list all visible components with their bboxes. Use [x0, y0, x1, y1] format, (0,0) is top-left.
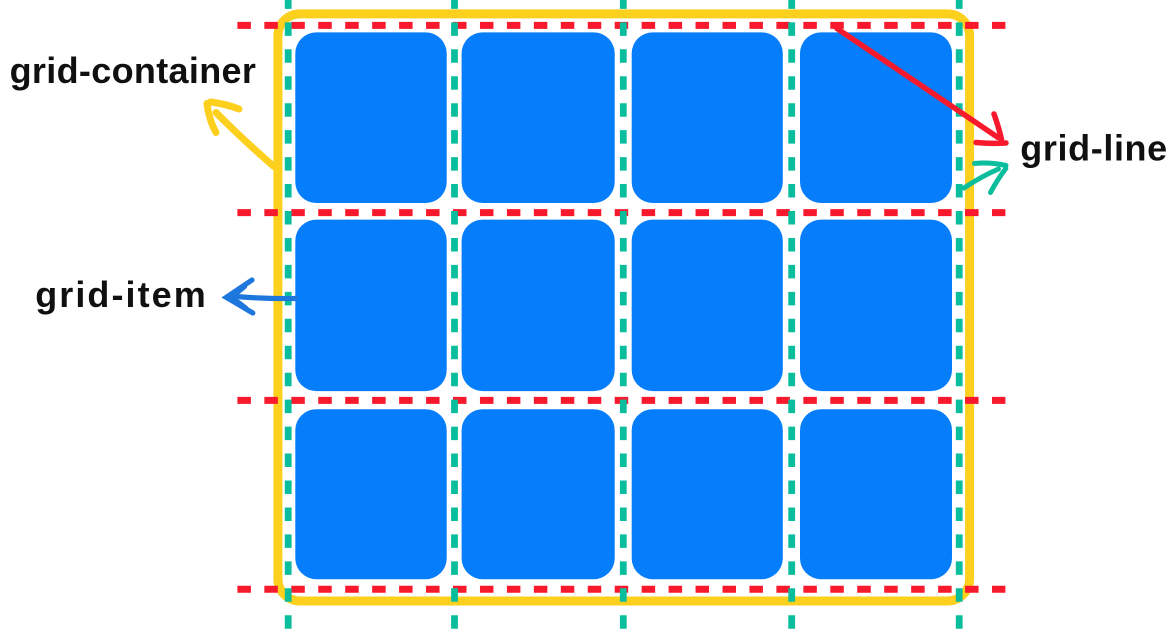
svg-text:grid-line: grid-line — [1020, 127, 1168, 168]
svg-text:grid-item: grid-item — [35, 274, 208, 315]
svg-text:grid-container: grid-container — [10, 50, 257, 91]
